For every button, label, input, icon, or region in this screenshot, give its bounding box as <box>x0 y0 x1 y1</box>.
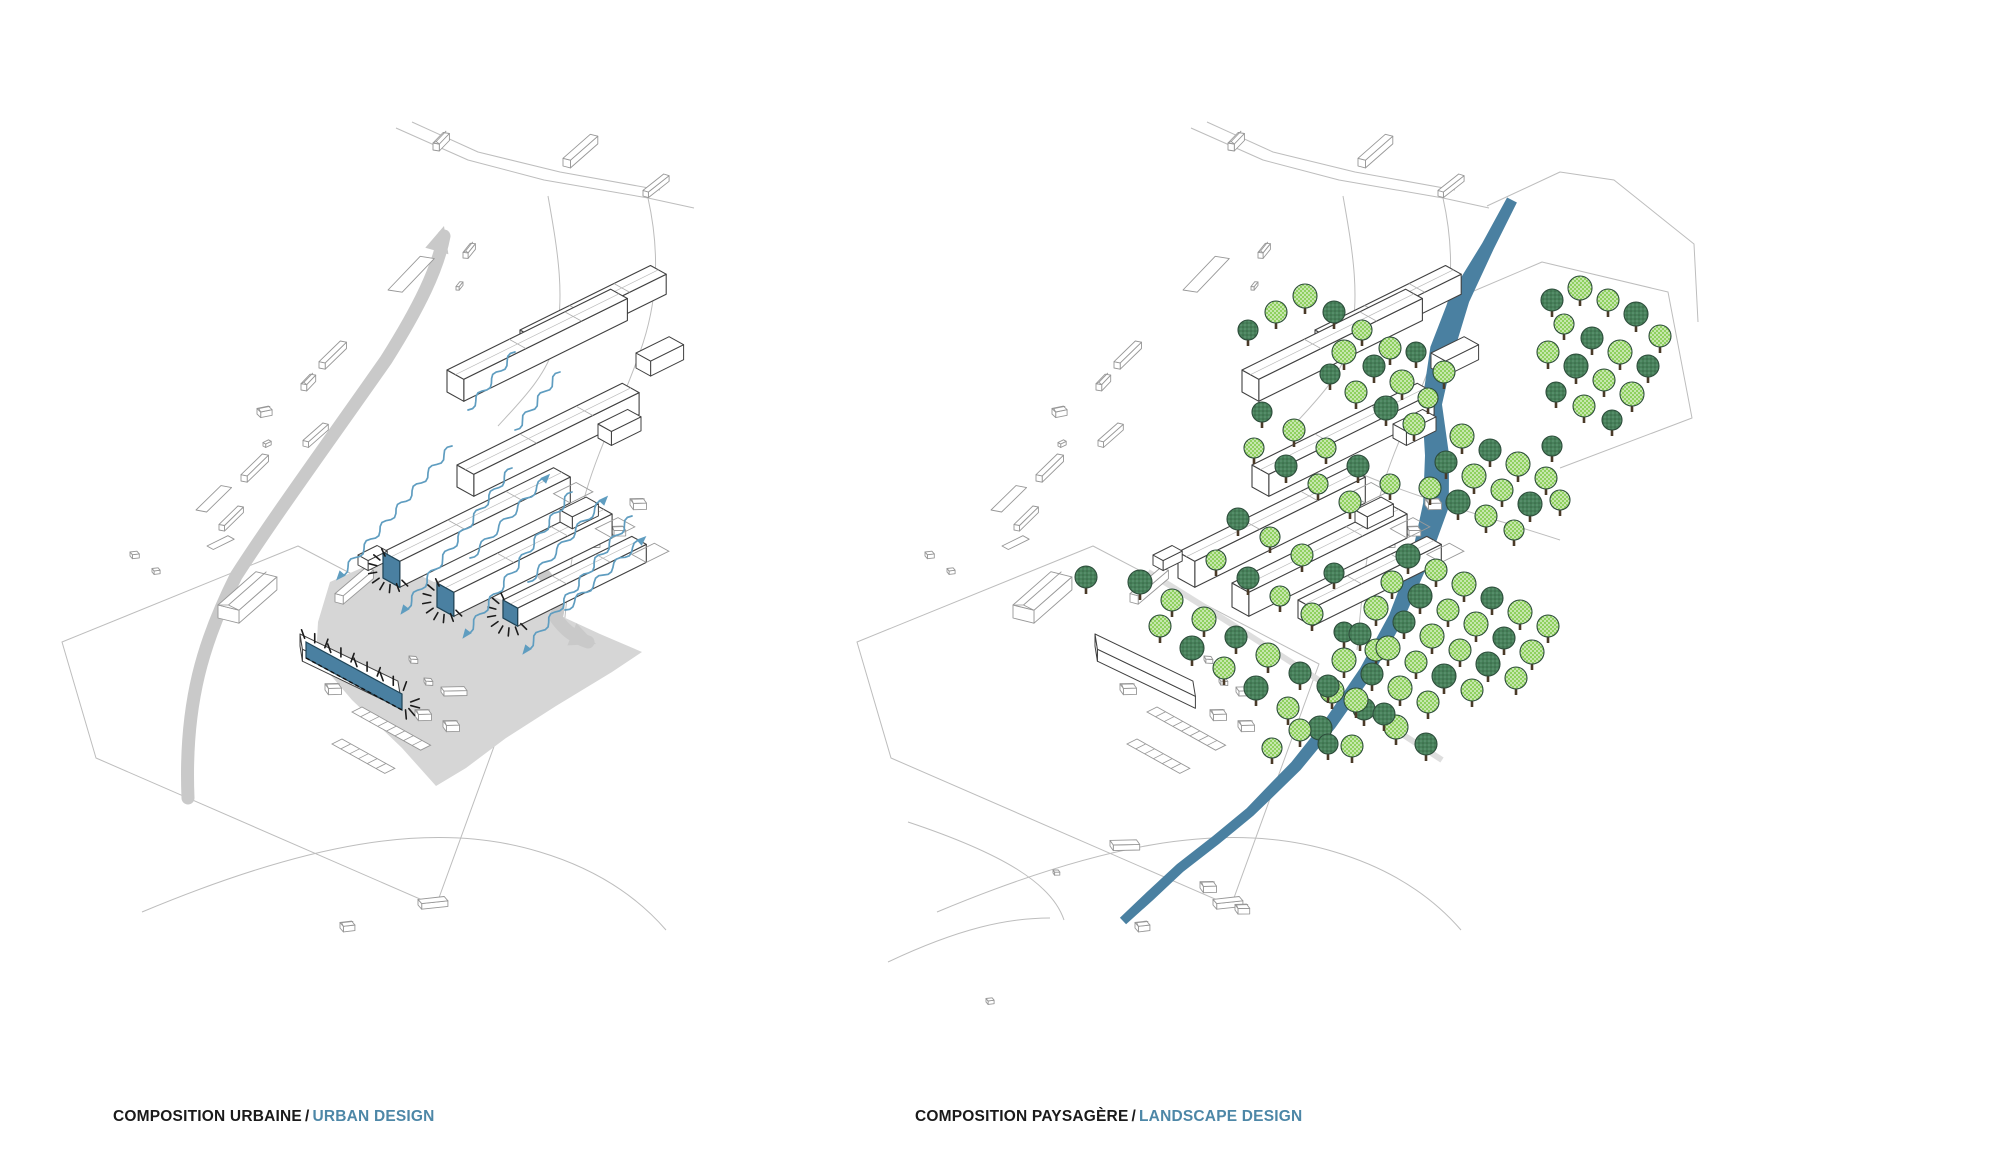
caption-landscape-en: LANDSCAPE DESIGN <box>1139 1108 1302 1125</box>
urban-design-diagram <box>62 122 694 932</box>
caption-urban-en: URBAN DESIGN <box>312 1108 434 1125</box>
caption-landscape-design: COMPOSITION PAYSAGÈRE/LANDSCAPE DESIGN <box>915 1108 1302 1126</box>
caption-landscape-sep: / <box>1132 1108 1137 1125</box>
caption-urban-sep: / <box>305 1108 310 1125</box>
site-diagrams <box>0 0 2000 1176</box>
landscape-design-diagram <box>857 122 1698 1004</box>
caption-urban-fr: COMPOSITION URBAINE <box>113 1108 302 1125</box>
caption-urban-design: COMPOSITION URBAINE/URBAN DESIGN <box>113 1108 435 1126</box>
caption-landscape-fr: COMPOSITION PAYSAGÈRE <box>915 1108 1129 1125</box>
page: COMPOSITION URBAINE/URBAN DESIGN COMPOSI… <box>0 0 2000 1176</box>
